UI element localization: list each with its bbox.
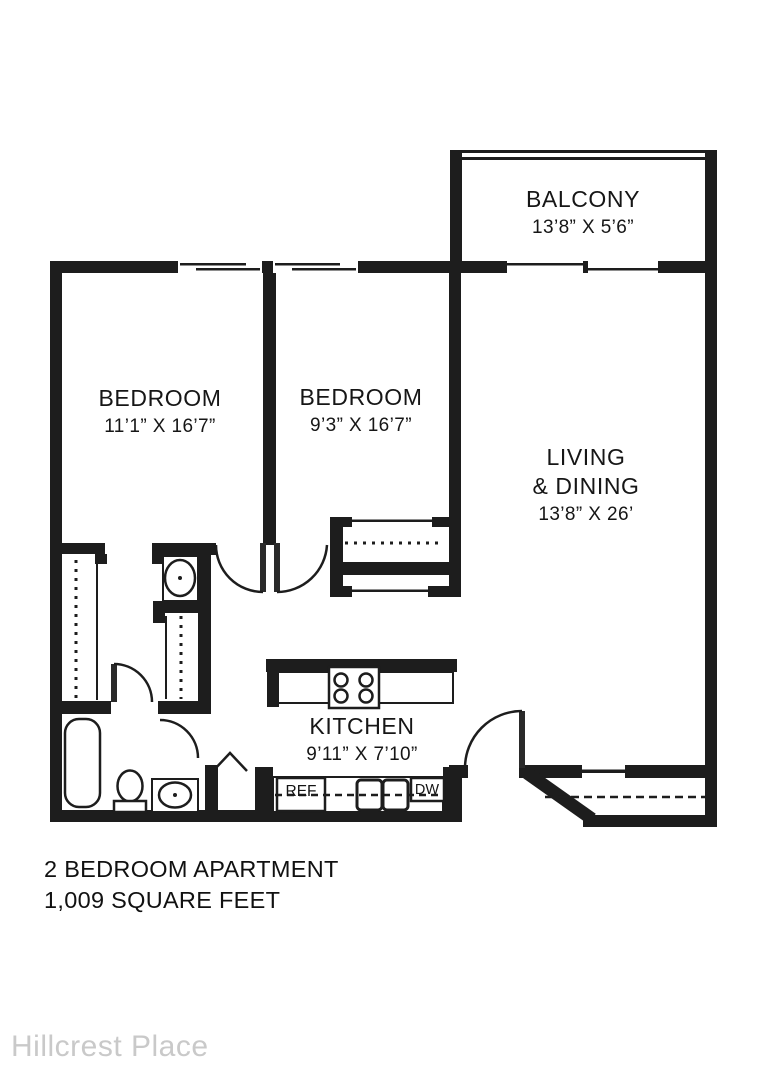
wall-left	[50, 261, 62, 822]
kitchen-jamb-left	[255, 767, 273, 812]
bedroom-middle-dims: 9’3” X 16’7”	[299, 415, 422, 437]
closet-sliding-door-top	[352, 520, 432, 523]
door-leaf	[519, 711, 525, 768]
door-leaf	[274, 543, 280, 592]
property-watermark: Hillcrest Place	[11, 1030, 209, 1064]
bedroom-middle-label: BEDROOM 9’3” X 16’7”	[299, 383, 422, 437]
wall-between-bedrooms	[263, 273, 276, 545]
balcony-dims: 13’8” X 5’6”	[526, 217, 640, 239]
bedroom-left-dims: 11’1” X 16’7”	[98, 416, 221, 438]
wall-bedroom-living	[449, 273, 461, 597]
plan-title-line1: 2 BEDROOM APARTMENT	[44, 854, 339, 885]
burner	[335, 674, 348, 687]
door-swing-arc-inner	[160, 720, 198, 758]
vanity-jamb-nub	[152, 555, 162, 564]
closet-mid-wall	[330, 562, 449, 575]
floor-plan-page: REF DW	[0, 0, 771, 1080]
bifold-closet-door	[213, 753, 247, 771]
living-bottom-window-line	[582, 770, 625, 774]
bathroom-fixtures	[65, 719, 198, 812]
burner	[360, 674, 373, 687]
balcony-slider-panel-left	[507, 263, 583, 266]
wall-below-vanity-stub	[153, 601, 165, 623]
living-name-line1: LIVING	[532, 443, 639, 472]
plan-title: 2 BEDROOM APARTMENT 1,009 SQUARE FEET	[44, 854, 339, 915]
wall-bath-kitchen	[205, 765, 218, 822]
toilet	[114, 771, 146, 813]
balcony-railing	[450, 150, 717, 160]
living-name-line2: & DINING	[532, 472, 639, 501]
wall-balcony-left	[450, 150, 462, 273]
railing-line-outer	[450, 150, 717, 153]
door-leaf	[111, 664, 117, 702]
wall-top-mid	[358, 261, 462, 273]
wall-closet-top	[50, 543, 105, 554]
railing-line-inner	[450, 157, 717, 160]
bathroom-sink-drain	[173, 793, 177, 797]
door-swing-arc	[114, 664, 152, 702]
wall-top-living-mid	[583, 261, 588, 273]
bedroom-middle-window-pane	[292, 268, 356, 271]
toilet-bowl	[118, 771, 143, 802]
wall-bath-top-right	[158, 701, 211, 714]
kitchen-peninsula-cap	[267, 659, 279, 707]
wall-top-living-left	[462, 261, 507, 273]
wall-bath-top-left	[50, 701, 111, 714]
wall-hall-bath	[198, 543, 211, 713]
kitchen-label: KITCHEN 9’11” X 7’10”	[306, 712, 418, 766]
bedroom-left-window-pane	[196, 268, 260, 271]
bathtub	[65, 719, 100, 807]
closet-sliding-door-bottom	[352, 590, 428, 593]
bedroom-middle-door	[274, 543, 327, 592]
burner	[335, 690, 348, 703]
left-closets	[76, 556, 198, 700]
bedroom-left-door	[216, 543, 266, 592]
refrigerator-label: REF	[286, 783, 317, 800]
door-leaf	[260, 543, 266, 592]
living-dims: 13’8” X 26’	[532, 504, 639, 526]
plan-title-line2: 1,009 SQUARE FEET	[44, 885, 339, 916]
vanity-drain	[178, 576, 182, 580]
closet-left-cap	[330, 517, 343, 597]
bedroom-left-label: BEDROOM 11’1” X 16’7”	[98, 384, 221, 438]
wall-top-divider-junction	[262, 261, 273, 273]
toilet-tank	[114, 801, 146, 812]
bedroom-middle-name: BEDROOM	[299, 383, 422, 412]
balcony-label: BALCONY 13’8” X 5’6”	[526, 185, 640, 239]
door-swing-arc	[277, 545, 327, 592]
bathroom-sink	[152, 779, 198, 812]
bedroom-left-window	[180, 263, 246, 266]
burner	[360, 690, 373, 703]
bedroom-left-name: BEDROOM	[98, 384, 221, 413]
stove	[329, 667, 379, 708]
bedroom-middle-closet	[330, 517, 449, 597]
door-swing-arc	[216, 545, 263, 592]
bedroom-middle-window	[275, 263, 340, 266]
door-swing-arc	[465, 711, 522, 768]
balcony-slider-panel-right	[588, 268, 658, 271]
vanity-sink	[163, 556, 198, 601]
balcony-name: BALCONY	[526, 185, 640, 214]
wall-top-left	[50, 261, 178, 273]
kitchen-name: KITCHEN	[306, 712, 418, 741]
wall-corridor-bottom	[583, 815, 717, 827]
kitchen-dims: 9’11” X 7’10”	[306, 744, 418, 766]
living-dining-label: LIVING & DINING 13’8” X 26’	[532, 443, 639, 526]
wall-right	[705, 150, 717, 827]
entry-door	[465, 711, 525, 768]
dishwasher-label: DW	[415, 782, 439, 798]
